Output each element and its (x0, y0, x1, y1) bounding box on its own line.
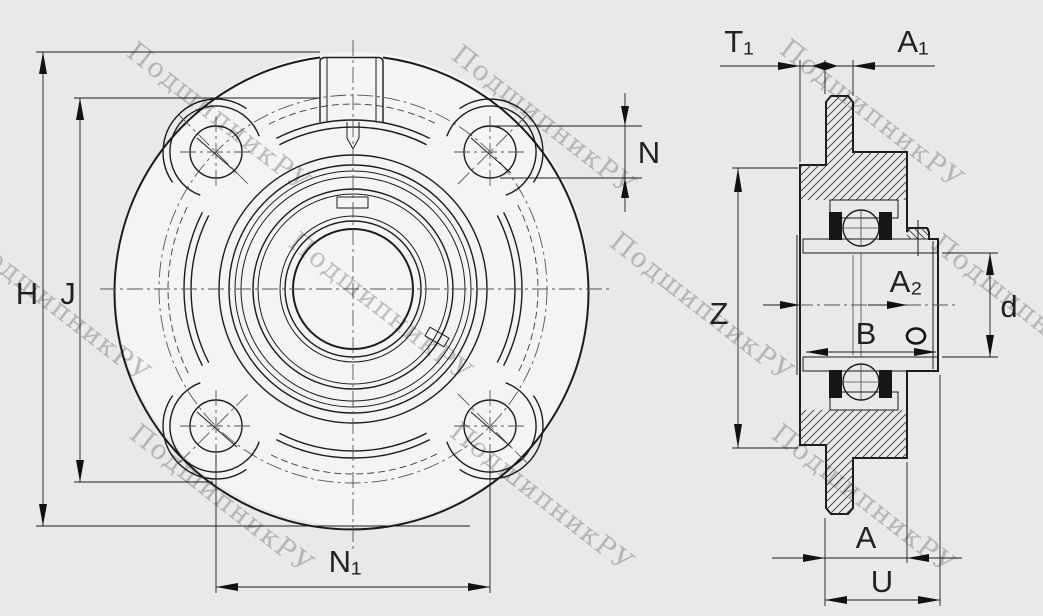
dim-label-n: N (638, 135, 660, 170)
dim-label-a1: A₁ (897, 24, 928, 59)
dim-label-a2: A₂ (890, 264, 923, 299)
drawing-canvas: H J N N₁ (0, 0, 1043, 616)
dim-label-u: U (871, 564, 893, 599)
dim-label-n1: N₁ (329, 544, 362, 579)
dim-label-b: B (856, 316, 877, 351)
dim-label-t1: T₁ (724, 24, 753, 59)
technical-drawing: H J N N₁ (0, 0, 1043, 616)
